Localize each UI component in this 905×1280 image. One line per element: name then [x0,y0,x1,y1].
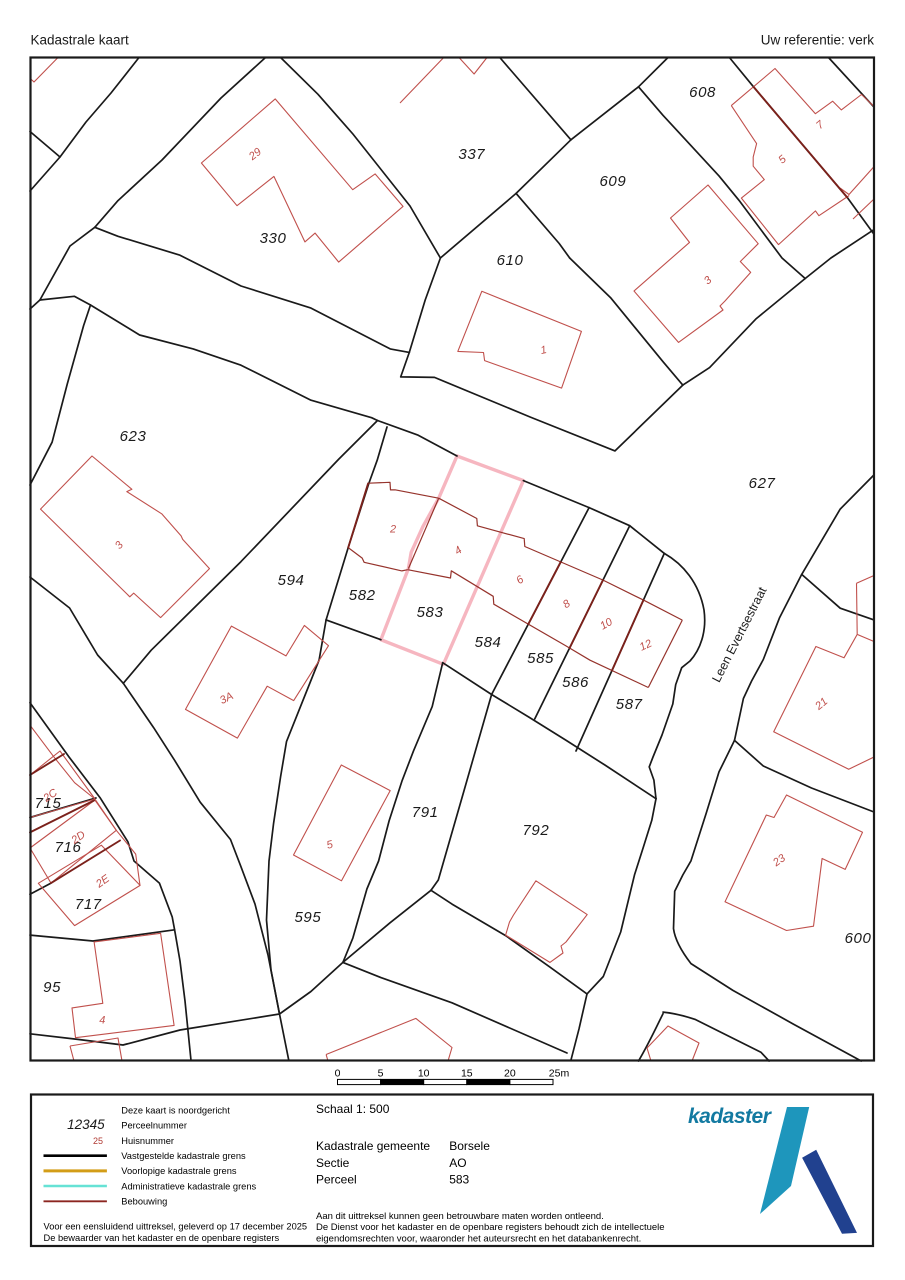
svg-text:Schaal 1: 500: Schaal 1: 500 [316,1102,390,1116]
svg-text:337: 337 [458,146,485,163]
svg-text:15: 15 [461,1068,473,1080]
svg-text:600: 600 [845,930,872,947]
svg-text:2: 2 [389,524,396,536]
svg-text:330: 330 [260,230,287,247]
svg-text:10: 10 [418,1068,430,1080]
svg-text:791: 791 [412,804,439,821]
svg-text:Huisnummer: Huisnummer [121,1136,174,1146]
svg-text:95: 95 [43,979,61,996]
svg-text:717: 717 [75,896,102,913]
svg-text:594: 594 [278,572,305,589]
svg-text:De Dienst voor het kadaster en: De Dienst voor het kadaster en de openba… [316,1222,665,1233]
svg-text:582: 582 [349,587,376,604]
svg-text:586: 586 [562,674,589,691]
svg-text:Borsele: Borsele [449,1139,490,1153]
svg-text:5: 5 [378,1068,384,1080]
svg-text:20: 20 [504,1068,516,1080]
svg-text:792: 792 [522,822,549,839]
svg-text:4: 4 [99,1015,105,1027]
svg-text:585: 585 [527,650,554,667]
svg-text:Administratieve kadastrale gre: Administratieve kadastrale grens [121,1181,256,1191]
svg-text:623: 623 [120,428,147,445]
svg-text:kadaster: kadaster [688,1105,773,1128]
svg-text:Perceel: Perceel [316,1173,357,1187]
svg-text:eigendomsrechten voor, waarond: eigendomsrechten voor, waaronder het aut… [316,1233,641,1244]
svg-text:587: 587 [616,696,643,713]
svg-text:Bebouwing: Bebouwing [121,1197,167,1207]
svg-text:Sectie: Sectie [316,1156,350,1170]
svg-text:610: 610 [497,252,524,269]
svg-text:25m: 25m [549,1068,570,1080]
svg-text:12345: 12345 [67,1117,105,1132]
svg-text:583: 583 [417,604,444,621]
svg-text:627: 627 [749,475,776,492]
svg-text:De bewaarder van het kadaster: De bewaarder van het kadaster en de open… [44,1233,280,1243]
svg-text:AO: AO [449,1156,466,1170]
svg-text:609: 609 [599,173,626,190]
svg-text:583: 583 [449,1173,469,1187]
svg-text:608: 608 [689,84,716,101]
svg-text:584: 584 [475,634,502,651]
svg-text:0: 0 [335,1068,341,1080]
svg-text:25: 25 [93,1136,103,1146]
svg-text:Aan dit uittreksel kunnen geen: Aan dit uittreksel kunnen geen betrouwba… [316,1211,604,1222]
svg-text:Perceelnummer: Perceelnummer [121,1120,187,1130]
svg-text:Voorlopige kadastrale grens: Voorlopige kadastrale grens [121,1166,237,1176]
svg-text:Uw referentie: verk: Uw referentie: verk [761,33,875,48]
svg-text:595: 595 [294,909,321,926]
svg-text:Kadastrale kaart: Kadastrale kaart [31,33,130,48]
svg-text:Vastgestelde kadastrale grens: Vastgestelde kadastrale grens [121,1151,246,1161]
svg-text:Deze kaart is noordgericht: Deze kaart is noordgericht [121,1105,230,1115]
svg-text:Kadastrale gemeente: Kadastrale gemeente [316,1139,430,1153]
svg-text:Voor een eensluidend uittrekse: Voor een eensluidend uittreksel, gelever… [44,1221,308,1231]
